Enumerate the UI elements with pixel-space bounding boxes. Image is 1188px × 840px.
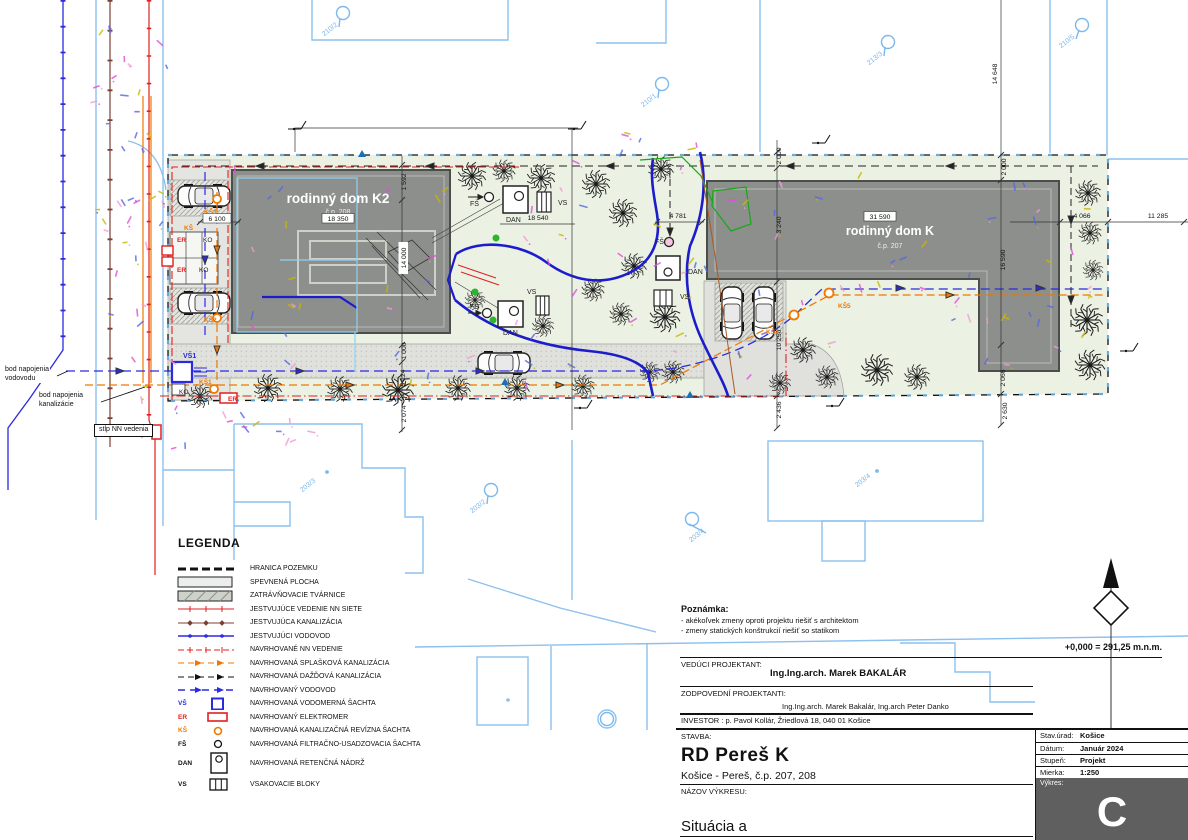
- plan-label: ER: [228, 396, 237, 403]
- svg-text:2 000: 2 000: [1001, 158, 1008, 175]
- svg-text:16 590: 16 590: [1000, 249, 1007, 270]
- plan-label: VS: [558, 200, 568, 207]
- filter-shaft-fs: [485, 193, 494, 202]
- water-meter-shaft-vs1: [172, 362, 192, 382]
- plan-label: KŠ: [184, 223, 194, 232]
- dimension-label: 5 124: [400, 369, 407, 386]
- svg-text:6 100: 6 100: [208, 216, 225, 223]
- svg-text:14 000: 14 000: [401, 247, 408, 268]
- sewer-shaft-ks3: [213, 195, 221, 203]
- paved-area-icon: [176, 576, 236, 588]
- dimension-label: 31 590: [864, 212, 896, 222]
- parcel-label: 203/2: [469, 484, 497, 515]
- parcel-label: 213/3: [866, 36, 894, 67]
- tree-icon: [816, 366, 839, 389]
- svg-text:203/4: 203/4: [854, 473, 872, 489]
- lead-designer-label: VEDÚCI PROJEKTANT:: [681, 660, 762, 669]
- existing-nn-line: [149, 0, 155, 575]
- svg-text:2 074: 2 074: [401, 405, 408, 422]
- legend-item: NAVRHOVANÁ SPLAŠKOVÁ KANALIZÁCIA: [176, 657, 536, 671]
- soakaway-blocks-vs: [536, 296, 549, 315]
- plan-label: FŠ: [655, 237, 664, 246]
- proposed-sewage-icon: [176, 657, 236, 669]
- water-meter-shaft-icon: [200, 697, 238, 710]
- proposed-water-icon: [176, 684, 236, 696]
- parcel-label: 203/4: [686, 513, 707, 544]
- parcel-label: 210/2: [321, 7, 349, 38]
- plan-label: KŠ5: [838, 301, 851, 310]
- dimension-label: 14 648: [992, 63, 999, 84]
- section-mark: [288, 121, 306, 130]
- section-mark: [826, 398, 844, 407]
- soakaway-blocks-icon: [200, 777, 238, 792]
- legend-item: FŠ NAVRHOVANÁ FILTRAČNO-USADZOVACIA ŠACH…: [176, 738, 536, 752]
- drawing-letter: C: [1036, 784, 1188, 840]
- svg-text:2 000: 2 000: [776, 147, 783, 164]
- revision-shaft-icon: [200, 725, 238, 737]
- tree-icon: [861, 354, 893, 386]
- existing-sewer-icon: [176, 617, 236, 629]
- dimension-label: 2 066: [1000, 369, 1007, 386]
- legend-item: DAN NAVRHOVANÁ RETENČNÁ NÁDRŽ: [176, 751, 536, 775]
- tree-icon: [904, 364, 929, 389]
- stavba-label: STAVBA:: [681, 732, 712, 741]
- legend-item: VS VSAKOVACIE BLOKY: [176, 775, 536, 794]
- proposed-rain-sewer-icon: [176, 671, 236, 683]
- svg-text:3 240: 3 240: [776, 216, 783, 233]
- plan-label: KŠ2: [204, 315, 217, 324]
- tree-icon: [504, 375, 529, 400]
- plan-label: KŠ4: [766, 327, 779, 336]
- proposed-nn-icon: [176, 644, 236, 656]
- dimension-label: 2 000: [1001, 158, 1008, 175]
- legend-item: NAVRHOVANÝ VODOVOD: [176, 684, 536, 698]
- plan-label: DAN: [503, 330, 518, 337]
- dimension-label: 18 350: [322, 214, 354, 224]
- titleblock-rule: [680, 713, 1033, 715]
- legend-item: VŠ NAVRHOVANÁ VODOMERNÁ ŠACHTA: [176, 697, 536, 711]
- svg-text:2 630: 2 630: [1002, 402, 1009, 419]
- tree-icon: [582, 170, 610, 198]
- drawing-letter-box: Výkres: C: [1036, 778, 1188, 840]
- tree-icon: [609, 199, 637, 227]
- house-k2-name: rodinný dom K2: [287, 191, 390, 206]
- parcel-label: 210/1: [640, 78, 668, 109]
- soakaway-blocks-vs: [537, 192, 551, 212]
- plan-label: KO: [179, 389, 188, 396]
- tree-icon: [790, 337, 815, 362]
- lead-designer-name: Ing.Ing.arch. Marek BAKALÁR: [770, 668, 906, 679]
- dimension-label: 4 781: [669, 213, 686, 220]
- tree-icon: [382, 374, 414, 406]
- project-subtitle: Košice - Pereš, č.p. 207, 208: [681, 770, 816, 782]
- existing-water-icon: [176, 630, 236, 642]
- dimension-label: 16 590: [1000, 249, 1007, 270]
- svg-text:18 350: 18 350: [328, 216, 349, 223]
- svg-text:4 066: 4 066: [1073, 213, 1090, 220]
- responsible-designers-names: Ing.Ing.arch. Marek Bakalár, Ing.arch Pe…: [782, 702, 949, 711]
- sewer-shaft-ks5: [825, 289, 834, 298]
- legend-item: HRANICA POZEMKU: [176, 562, 536, 576]
- plan-label: DAN: [688, 269, 703, 276]
- tree-icon: [572, 375, 595, 398]
- tree-icon: [582, 279, 605, 302]
- sewer-shaft-ks4: [790, 311, 799, 320]
- section-mark: [574, 400, 592, 409]
- titleblock-rule: [680, 784, 1033, 785]
- svg-text:2 436: 2 436: [776, 401, 783, 418]
- site-plan-sheet: rodinný dom K2 č.p. 208 rodinný dom K č.…: [0, 0, 1188, 840]
- note-line: - akékoľvek zmeny oproti projektu riešiť…: [681, 616, 859, 626]
- flow-arrow: [116, 368, 124, 374]
- titleblock-rule: [680, 686, 1033, 687]
- tree-icon: [532, 315, 553, 336]
- tree-icon: [254, 374, 282, 402]
- section-mark: [812, 135, 830, 144]
- existing-nn-icon: [176, 603, 236, 615]
- sewer-shaft-ks1: [210, 385, 218, 393]
- dimension-label: 1 000: [401, 342, 408, 359]
- dimension-label: 11 285: [1148, 213, 1169, 220]
- tree-icon: [1079, 222, 1102, 245]
- legend-item: JESTVUJÚCI VODOVOD: [176, 630, 536, 644]
- existing-water-main: [8, 0, 63, 490]
- note-block: Poznámka: - akékoľvek zmeny oproti proje…: [681, 604, 859, 635]
- marker-triangle: [358, 150, 366, 157]
- tree-icon: [327, 376, 352, 401]
- tree-icon: [1075, 180, 1100, 205]
- legend: LEGENDA HRANICA POZEMKU SPEVNENÁ PLOCHA …: [176, 536, 536, 794]
- section-mark: [1120, 343, 1138, 352]
- titleblock-rule: [680, 836, 1033, 837]
- house-k-name: rodinný dom K: [846, 224, 934, 238]
- tree-icon: [610, 303, 633, 326]
- svg-text:18 540: 18 540: [528, 215, 549, 222]
- svg-text:5 124: 5 124: [400, 369, 407, 386]
- boundary-line-icon: [176, 563, 236, 575]
- plan-label: KO: [199, 267, 208, 274]
- parcel-label: 210/5: [1058, 19, 1088, 50]
- svg-text:14 648: 14 648: [992, 63, 999, 84]
- legend-title: LEGENDA: [178, 536, 536, 550]
- tree-icon: [493, 160, 516, 183]
- plan-label: FŠ: [470, 302, 479, 311]
- plan-label: VS: [680, 294, 690, 301]
- legend-item: JESTVUJÚCE VEDENIE NN SIETE: [176, 603, 536, 617]
- legend-item: KŠ NAVRHOVANÁ KANALIZAČNÁ REVÍZNA ŠACHTA: [176, 724, 536, 738]
- svg-text:203/2: 203/2: [469, 499, 487, 515]
- dimension-label: 4 066: [1073, 213, 1090, 220]
- section-mark: [568, 121, 586, 130]
- svg-text:31 590: 31 590: [870, 214, 891, 221]
- dimension-label: 2 000: [776, 147, 783, 164]
- plan-label: KŠ3: [204, 207, 217, 216]
- legend-item: ER NAVRHOVANÝ ELEKTROMER: [176, 711, 536, 725]
- tree-icon: [769, 372, 790, 393]
- plan-label: FŠ: [470, 199, 479, 208]
- titleblock-rule: [680, 657, 1162, 658]
- legend-item: ZATRÁVŇOVACIE TVÁRNICE: [176, 589, 536, 603]
- elevation-datum: +0,000 = 291,25 m.n.m.: [950, 642, 1162, 652]
- plan-label: ER: [177, 267, 186, 274]
- parcel-label: 203/4: [854, 469, 879, 489]
- dimension-label: 2 436: [776, 401, 783, 418]
- electrometer-icon: [200, 711, 238, 723]
- svg-text:11 285: 11 285: [1148, 213, 1169, 220]
- dimension-label: 3 240: [776, 216, 783, 233]
- filter-shaft-icon: [200, 738, 238, 750]
- house-k-number: č.p. 207: [878, 243, 903, 250]
- drawing-name-label: NÁZOV VÝKRESU:: [681, 787, 747, 796]
- dimension-label: 14 000: [399, 242, 409, 274]
- svg-text:210/2: 210/2: [321, 22, 339, 38]
- parcel-label: 203/3: [299, 470, 329, 494]
- svg-text:4 781: 4 781: [669, 213, 686, 220]
- svg-text:213/3: 213/3: [866, 51, 884, 67]
- callout-nn-pole: stĺp NN vedenia: [94, 424, 153, 437]
- tree-icon: [662, 361, 685, 384]
- tree-icon: [445, 375, 470, 400]
- tree-icon: [1071, 304, 1103, 336]
- plan-label: VŠ1: [183, 351, 196, 360]
- dimension-label: 2 630: [1002, 402, 1009, 419]
- svg-text:2 066: 2 066: [1000, 369, 1007, 386]
- legend-item: JESTVUJÚCA KANALIZÁCIA: [176, 616, 536, 630]
- titleblock-row: Stav.úrad: Košice: [1036, 729, 1188, 743]
- plan-label: DAN: [506, 217, 521, 224]
- tree-icon: [1083, 260, 1103, 280]
- svg-text:210/5: 210/5: [1058, 34, 1076, 50]
- note-title: Poznámka:: [681, 604, 859, 614]
- legend-item: NAVRHOVANÁ DAŽĎOVÁ KANALIZÁCIA: [176, 670, 536, 684]
- filter-shaft-fs: [483, 309, 492, 318]
- callout-sewer-connection: bod napojenia kanalizácie: [38, 392, 84, 409]
- drawing-title: Situácia a: [681, 818, 747, 835]
- grass-paver-icon: [176, 590, 236, 602]
- plan-label: KO: [203, 237, 212, 244]
- project-title: RD Pereš K: [681, 745, 790, 767]
- parcel-label: [601, 713, 614, 726]
- filter-shaft-fs: [665, 238, 674, 247]
- svg-text:1 000: 1 000: [401, 342, 408, 359]
- plan-label: VS: [527, 289, 537, 296]
- svg-text:203/4: 203/4: [688, 528, 706, 544]
- legend-item: NAVRHOVANÉ NN VEDENIE: [176, 643, 536, 657]
- investor-line: INVESTOR : p. Pavol Kollár, Žriedlová 18…: [681, 716, 871, 725]
- note-line: - zmeny statických konštrukcií riešiť so…: [681, 626, 859, 636]
- legend-item: SPEVNENÁ PLOCHA: [176, 576, 536, 590]
- dimension-label: 2 074: [401, 405, 408, 422]
- plan-label: ER: [177, 237, 186, 244]
- tree-icon: [527, 164, 555, 192]
- svg-text:203/3: 203/3: [299, 478, 317, 494]
- responsible-designers-label: ZODPOVEDNÍ PROJEKTANTI:: [681, 689, 786, 698]
- svg-text:210/1: 210/1: [640, 93, 658, 109]
- dimension-label: 1 592: [401, 173, 408, 190]
- svg-text:1 592: 1 592: [401, 173, 408, 190]
- soakaway-blocks-vs: [654, 290, 672, 306]
- callout-water-connection: bod napojenia vodovodu: [4, 366, 50, 383]
- dimension-label: 18 540: [528, 215, 549, 222]
- tree-icon: [1075, 350, 1105, 380]
- retention-tank-icon: [200, 752, 238, 774]
- plan-label: KŠ1: [199, 377, 212, 386]
